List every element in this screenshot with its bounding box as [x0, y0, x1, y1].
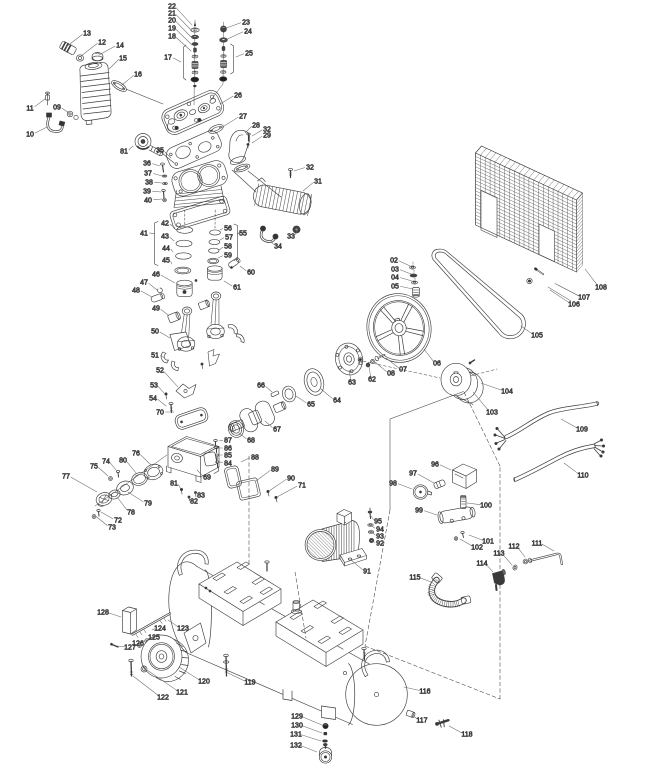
- svg-text:125: 125: [148, 635, 160, 642]
- svg-text:43: 43: [161, 234, 169, 241]
- svg-text:11: 11: [26, 106, 33, 113]
- svg-text:03: 03: [391, 267, 399, 274]
- svg-text:28: 28: [252, 123, 260, 130]
- svg-text:75: 75: [90, 464, 98, 471]
- svg-text:131: 131: [290, 732, 302, 739]
- svg-text:20: 20: [168, 18, 176, 25]
- svg-text:110: 110: [577, 473, 588, 480]
- svg-text:53: 53: [150, 383, 158, 390]
- svg-text:42: 42: [161, 221, 169, 228]
- svg-text:123: 123: [177, 626, 189, 633]
- svg-text:39: 39: [143, 189, 151, 196]
- svg-text:07: 07: [399, 367, 407, 374]
- svg-text:51: 51: [151, 353, 159, 360]
- svg-text:69: 69: [203, 475, 211, 482]
- svg-text:118: 118: [461, 732, 472, 739]
- svg-text:52: 52: [156, 368, 164, 375]
- svg-text:60: 60: [247, 270, 255, 277]
- svg-text:21: 21: [168, 11, 176, 18]
- svg-text:90: 90: [287, 476, 295, 483]
- svg-text:74: 74: [102, 459, 110, 466]
- svg-text:96: 96: [431, 462, 439, 469]
- svg-text:100: 100: [480, 503, 492, 510]
- svg-text:33: 33: [287, 234, 295, 241]
- svg-text:17: 17: [164, 55, 172, 62]
- svg-text:71: 71: [298, 483, 306, 490]
- svg-text:04: 04: [391, 275, 399, 282]
- svg-text:120: 120: [198, 679, 210, 686]
- svg-text:08: 08: [387, 371, 395, 378]
- svg-text:91: 91: [363, 569, 371, 576]
- svg-text:88: 88: [251, 455, 259, 462]
- svg-text:49: 49: [152, 306, 160, 313]
- svg-text:15: 15: [119, 56, 127, 63]
- svg-text:05: 05: [391, 284, 399, 291]
- svg-text:111: 111: [532, 541, 543, 548]
- svg-text:103: 103: [486, 410, 498, 417]
- svg-text:36: 36: [143, 161, 151, 168]
- svg-text:37: 37: [144, 171, 152, 178]
- svg-text:34: 34: [274, 244, 282, 251]
- svg-text:82: 82: [190, 499, 198, 506]
- svg-text:45: 45: [162, 258, 170, 265]
- svg-text:113: 113: [493, 551, 504, 558]
- svg-text:40: 40: [144, 198, 152, 205]
- svg-text:93: 93: [376, 534, 384, 541]
- svg-text:87: 87: [224, 438, 232, 445]
- svg-text:35: 35: [156, 148, 164, 155]
- svg-text:84: 84: [224, 461, 232, 468]
- svg-text:104: 104: [501, 389, 513, 396]
- svg-text:85: 85: [224, 453, 232, 460]
- svg-text:47: 47: [140, 280, 148, 287]
- svg-text:95: 95: [374, 519, 382, 526]
- svg-text:61: 61: [233, 285, 241, 292]
- svg-text:16: 16: [134, 72, 142, 79]
- svg-text:18: 18: [168, 34, 176, 41]
- svg-text:02: 02: [390, 258, 398, 265]
- svg-text:108: 108: [595, 285, 607, 292]
- svg-text:22: 22: [168, 4, 176, 11]
- svg-text:24: 24: [244, 29, 252, 36]
- svg-text:68: 68: [247, 438, 255, 445]
- svg-text:119: 119: [244, 680, 255, 687]
- svg-text:132: 132: [290, 743, 302, 750]
- svg-text:56: 56: [224, 226, 232, 233]
- svg-text:48: 48: [132, 288, 140, 295]
- svg-text:109: 109: [576, 427, 588, 434]
- svg-text:122: 122: [157, 695, 169, 702]
- svg-text:12: 12: [98, 40, 106, 47]
- svg-text:114: 114: [476, 561, 487, 568]
- svg-text:121: 121: [176, 690, 188, 697]
- svg-text:54: 54: [149, 396, 157, 403]
- svg-text:13: 13: [83, 31, 91, 38]
- svg-text:59: 59: [224, 253, 232, 260]
- svg-text:38: 38: [145, 180, 153, 187]
- svg-text:86: 86: [224, 446, 232, 453]
- svg-text:128: 128: [97, 610, 109, 617]
- svg-text:78: 78: [127, 510, 135, 517]
- svg-text:55: 55: [239, 231, 247, 238]
- svg-text:92: 92: [376, 541, 384, 548]
- svg-text:97: 97: [409, 471, 417, 478]
- svg-text:27: 27: [239, 114, 247, 121]
- svg-text:31: 31: [314, 179, 322, 186]
- svg-text:10: 10: [26, 132, 34, 139]
- svg-text:65: 65: [307, 402, 315, 409]
- svg-text:29: 29: [263, 133, 271, 140]
- svg-text:26: 26: [234, 93, 242, 100]
- svg-text:105: 105: [531, 333, 543, 340]
- svg-text:32: 32: [306, 165, 314, 172]
- svg-text:23: 23: [242, 20, 250, 27]
- svg-text:80: 80: [119, 458, 127, 465]
- svg-text:99: 99: [415, 508, 423, 515]
- svg-text:115: 115: [409, 575, 420, 582]
- svg-text:57: 57: [225, 235, 233, 242]
- svg-text:50: 50: [151, 329, 159, 336]
- svg-text:63: 63: [348, 380, 356, 387]
- svg-text:98: 98: [389, 481, 397, 488]
- svg-text:14: 14: [116, 43, 124, 50]
- svg-text:73: 73: [108, 525, 116, 532]
- svg-text:25: 25: [245, 51, 253, 58]
- svg-text:94: 94: [376, 527, 384, 534]
- svg-text:06: 06: [433, 361, 441, 368]
- svg-text:116: 116: [419, 689, 430, 696]
- svg-text:66: 66: [257, 383, 265, 390]
- svg-text:67: 67: [273, 427, 281, 434]
- svg-text:101: 101: [482, 539, 494, 546]
- svg-text:112: 112: [508, 544, 519, 551]
- svg-text:76: 76: [132, 451, 140, 458]
- svg-text:89: 89: [271, 467, 279, 474]
- svg-text:106: 106: [568, 302, 580, 309]
- svg-text:41: 41: [140, 231, 148, 238]
- svg-text:81: 81: [120, 149, 128, 156]
- svg-text:107: 107: [578, 295, 590, 302]
- svg-text:83: 83: [197, 493, 205, 500]
- svg-text:58: 58: [224, 244, 232, 251]
- svg-text:102: 102: [471, 545, 483, 552]
- svg-text:117: 117: [416, 718, 427, 725]
- svg-text:124: 124: [154, 626, 166, 633]
- svg-text:129: 129: [291, 714, 303, 721]
- svg-text:127: 127: [124, 645, 136, 652]
- svg-text:70: 70: [156, 410, 164, 417]
- svg-text:72: 72: [114, 518, 122, 525]
- svg-text:19: 19: [168, 26, 176, 33]
- svg-text:44: 44: [162, 246, 170, 253]
- svg-text:130: 130: [291, 723, 303, 730]
- svg-text:46: 46: [152, 272, 160, 279]
- svg-text:79: 79: [144, 501, 152, 508]
- svg-text:09: 09: [53, 105, 61, 112]
- svg-text:62: 62: [368, 377, 376, 384]
- svg-text:64: 64: [333, 398, 341, 405]
- svg-text:77: 77: [62, 474, 70, 481]
- svg-text:81: 81: [170, 481, 178, 488]
